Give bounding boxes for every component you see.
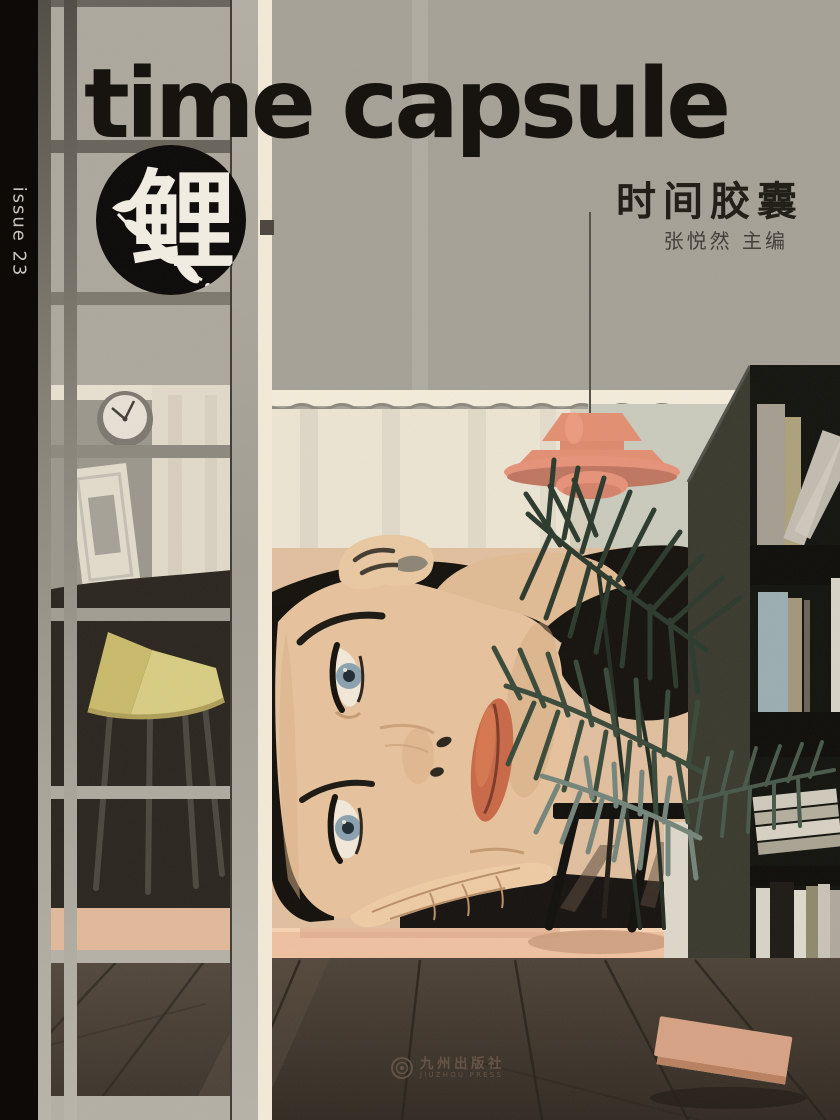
cover-title-chinese: 时间胶囊 [616, 182, 804, 222]
magazine-cover: 鲤 鲤 issue 23 time capsule 时间胶囊 张悦然 主编 九州… [0, 0, 840, 1120]
paper-grain [0, 0, 840, 1120]
publisher-name-en: JIUZHOU PRESS [420, 1072, 505, 1080]
cover-title: time capsule [84, 56, 727, 152]
publisher-name-cn: 九州出版社 [420, 1057, 505, 1072]
publisher-mark: 九州出版社 JIUZHOU PRESS [390, 1056, 505, 1080]
spine-issue-label: issue 23 [9, 187, 30, 278]
publisher-emblem-icon [390, 1056, 414, 1080]
cover-illustration: 鲤 鲤 [0, 0, 840, 1120]
editor-byline: 张悦然 主编 [664, 231, 788, 251]
spine-strip: issue 23 [0, 0, 38, 1120]
